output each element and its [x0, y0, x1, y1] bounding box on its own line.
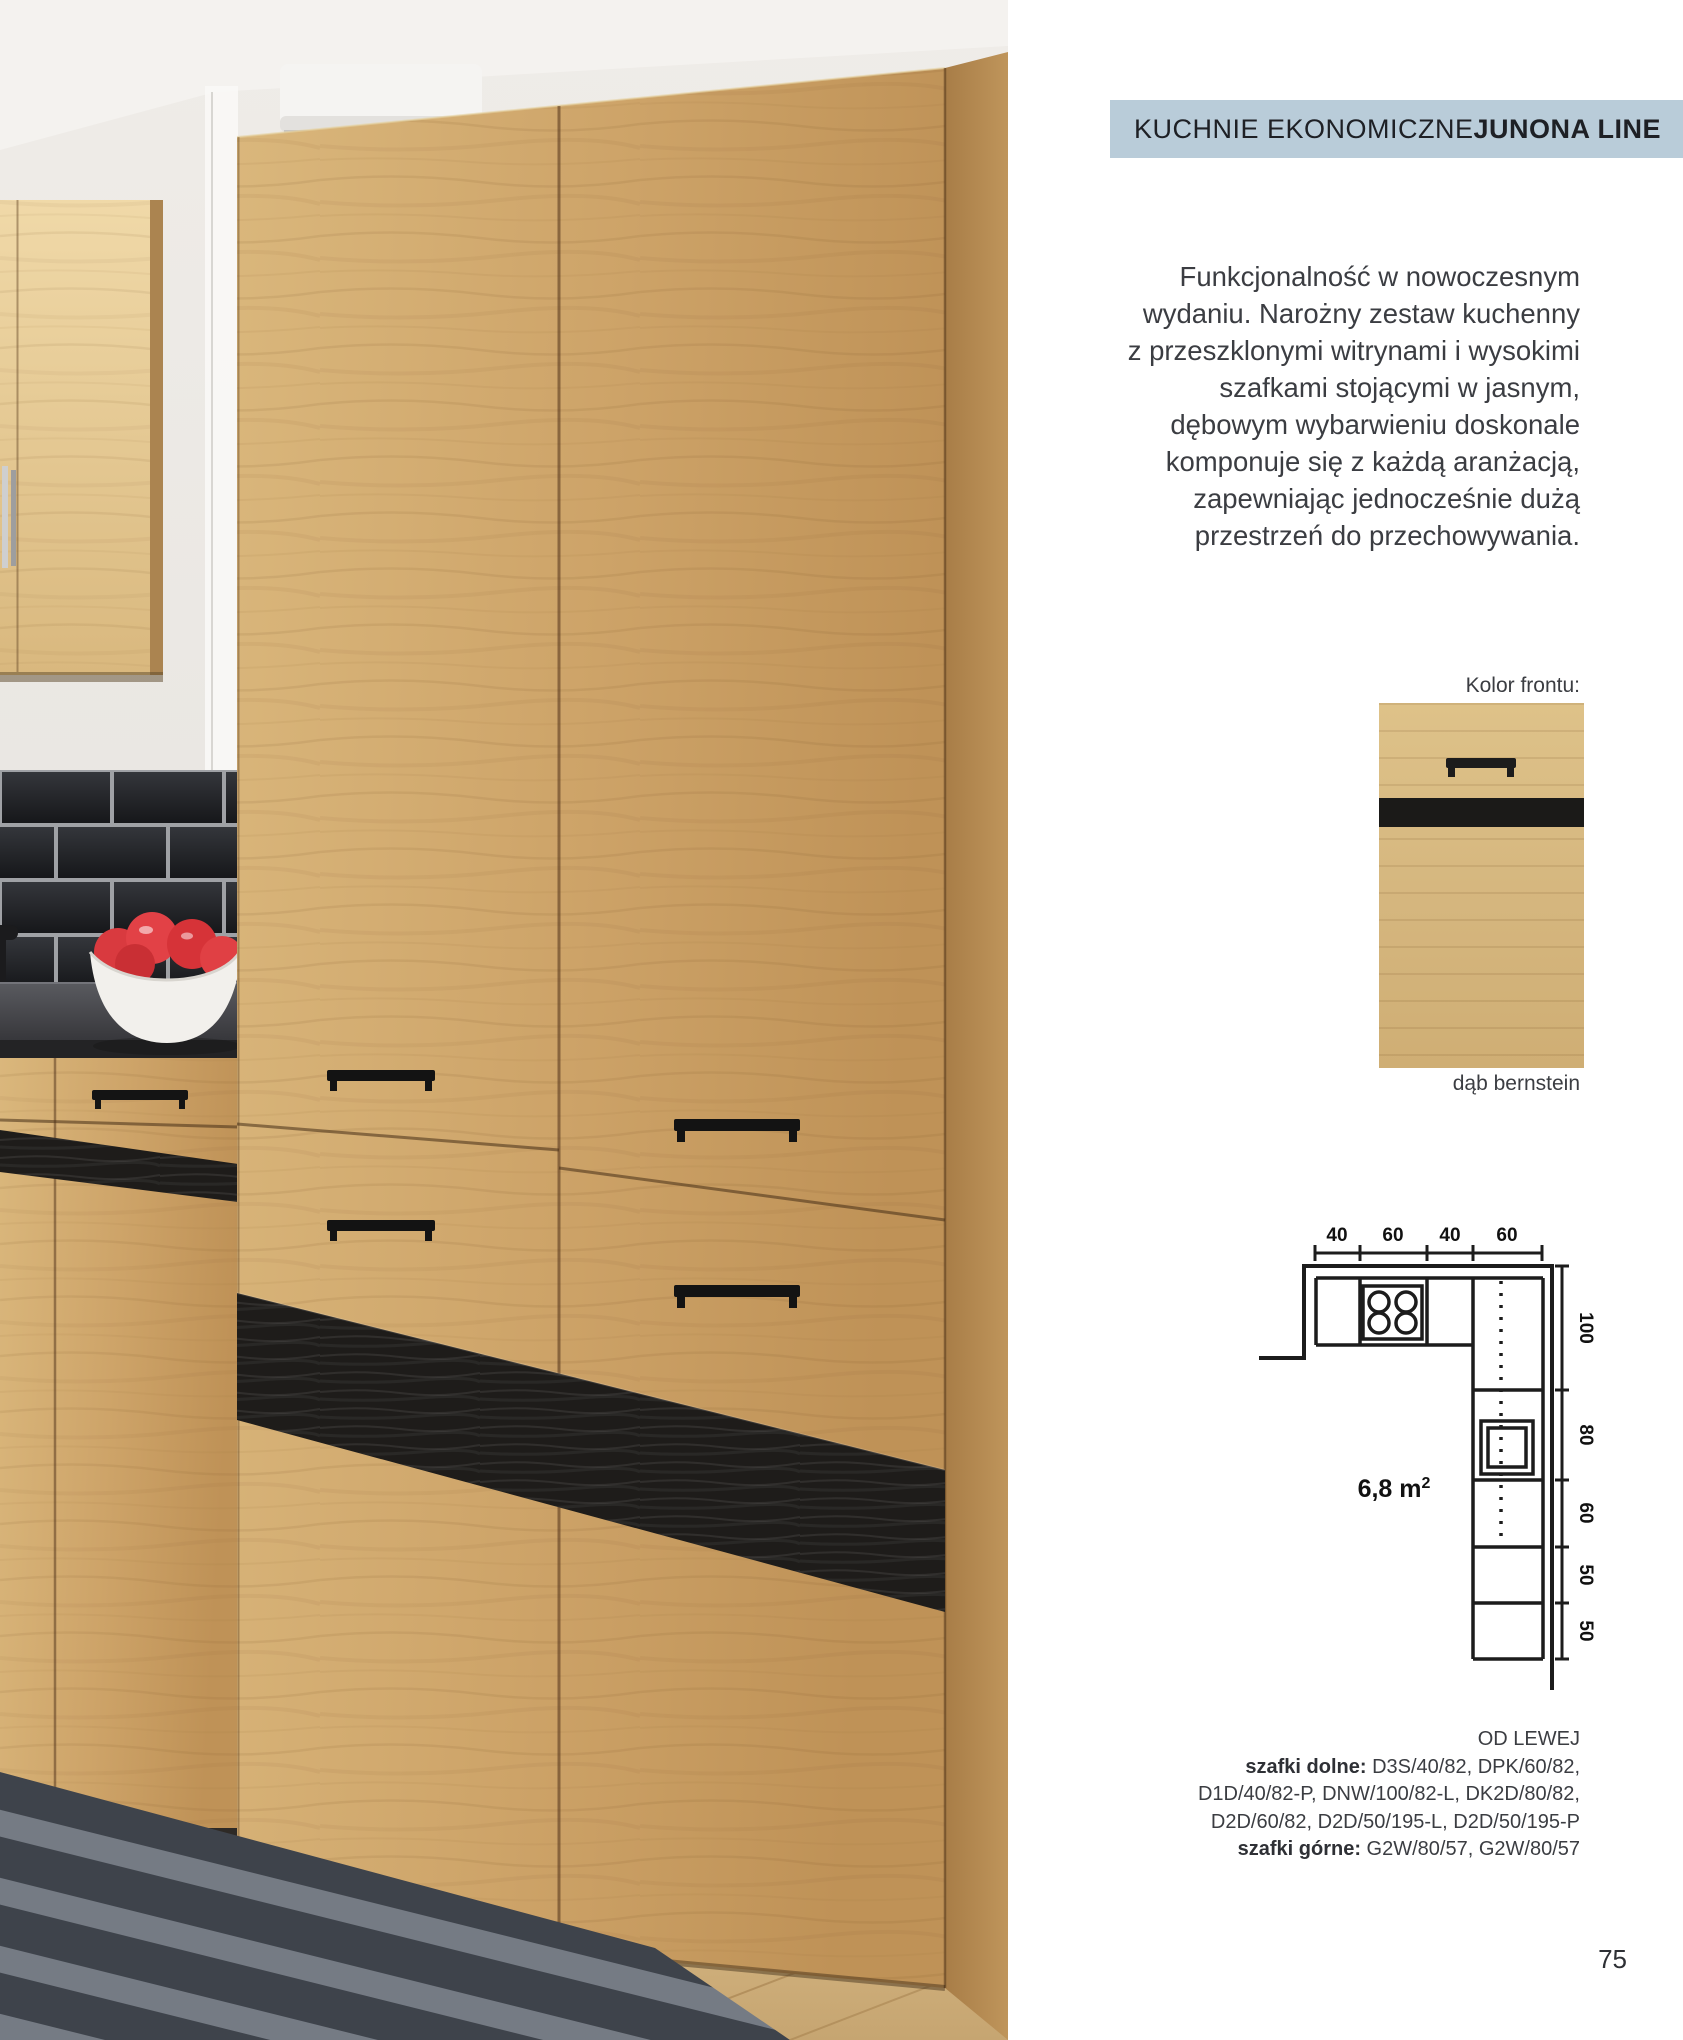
front-color-label: Kolor frontu: — [1466, 674, 1580, 698]
description-line: wydaniu. Narożny zestaw kuchenny — [1060, 295, 1580, 332]
description-line: dębowym wybarwieniu doskonale — [1060, 406, 1580, 443]
dim-label: 80 — [1575, 1424, 1594, 1445]
tall-cabinet-side — [945, 52, 1008, 2040]
dim-label: 60 — [1382, 1225, 1403, 1246]
catalog-page: KUCHNIE EKONOMICZNE JUNONA LINE Funkcjon… — [0, 0, 1683, 2040]
cabinet-handle — [2, 466, 8, 568]
top-dimension-labels: 40 60 40 60 — [1326, 1225, 1517, 1246]
swatch-name: dąb bernstein — [1453, 1072, 1580, 1096]
description-line: zapewniając jednocześnie dużą — [1060, 480, 1580, 517]
swatch-accent-stripe — [1379, 798, 1584, 827]
collection-badge: KUCHNIE EKONOMICZNE JUNONA LINE — [1110, 100, 1683, 158]
dim-label: 50 — [1575, 1564, 1594, 1585]
kitchen-photo — [0, 0, 1008, 2040]
dim-label: 60 — [1496, 1225, 1517, 1246]
cabinet-handle — [11, 470, 16, 566]
page-number: 75 — [1598, 1944, 1627, 1975]
side-dimension-labels: 100 80 60 50 50 — [1575, 1312, 1594, 1641]
area-label: 6,8 m2 — [1358, 1475, 1431, 1503]
kitchen-photo-art — [0, 0, 1008, 2040]
base-cabinets — [0, 1058, 238, 1862]
top-cabinets-label: szafki górne: — [1238, 1838, 1361, 1860]
from-left-label: OD LEWEJ — [1198, 1726, 1580, 1754]
badge-category: KUCHNIE EKONOMICZNE — [1134, 114, 1474, 145]
tall-cabinet — [237, 52, 1008, 2040]
top-cabinets-line: szafki górne: G2W/80/57, G2W/80/57 — [1198, 1836, 1580, 1864]
bottom-cabinets-line: szafki dolne: D3S/40/82, DPK/60/82, — [1198, 1754, 1580, 1782]
swatch-handle-post — [1448, 766, 1455, 777]
cabinet-list: OD LEWEJ szafki dolne: D3S/40/82, DPK/60… — [1198, 1726, 1580, 1864]
dim-label: 40 — [1439, 1225, 1460, 1246]
description-line: z przeszklonymi witrynami i wysokimi — [1060, 332, 1580, 369]
dim-label: 60 — [1575, 1502, 1594, 1523]
bottom-cabinets-line: D2D/60/82, D2D/50/195-L, D2D/50/195-P — [1198, 1809, 1580, 1837]
dim-label: 50 — [1575, 1620, 1594, 1641]
floor-plan-diagram: 40 60 40 60 — [1249, 1225, 1594, 1695]
dim-label: 100 — [1575, 1312, 1594, 1344]
top-dimension-line — [1315, 1245, 1542, 1261]
description-line: komponuje się z każdą aranżacją, — [1060, 443, 1580, 480]
description-line: szafkami stojącymi w jasnym, — [1060, 369, 1580, 406]
bottom-cabinets-label: szafki dolne: — [1245, 1756, 1366, 1778]
front-color-swatch — [1379, 703, 1584, 1068]
swatch-handle-post — [1507, 766, 1514, 777]
swatch-handle — [1446, 758, 1516, 768]
sink-symbol — [1481, 1421, 1533, 1474]
side-dimension-line — [1555, 1266, 1569, 1659]
description-text: Funkcjonalność w nowoczesnym wydaniu. Na… — [1060, 258, 1580, 554]
hob-symbol — [1363, 1286, 1422, 1339]
wall-cabinet — [0, 200, 163, 682]
badge-collection: JUNONA LINE — [1474, 114, 1662, 145]
description-line: przestrzeń do przechowywania. — [1060, 517, 1580, 554]
bottom-cabinets-line: D1D/40/82-P, DNW/100/82-L, DK2D/80/82, — [1198, 1781, 1580, 1809]
dim-label: 40 — [1326, 1225, 1347, 1246]
description-line: Funkcjonalność w nowoczesnym — [1060, 258, 1580, 295]
